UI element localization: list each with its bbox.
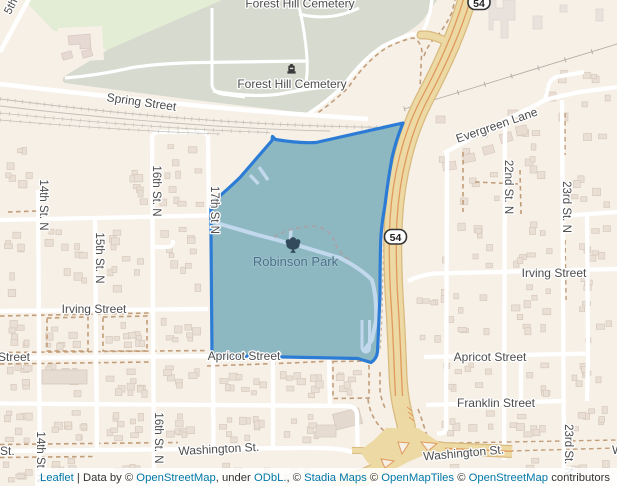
svg-text:Irving Street: Irving Street <box>522 266 587 280</box>
svg-text:16th St. N: 16th St. N <box>152 412 164 463</box>
svg-text:Irving Street: Irving Street <box>62 302 127 316</box>
svg-text:Apricot Street: Apricot Street <box>208 349 281 363</box>
svg-text:23rd St. N: 23rd St. N <box>560 181 572 233</box>
svg-text:22nd St. N: 22nd St. N <box>502 160 514 214</box>
svg-text:16th St. N: 16th St. N <box>150 165 162 216</box>
svg-text:Forest Hill Cemetery: Forest Hill Cemetery <box>237 77 346 91</box>
svg-text:Apricot Street: Apricot Street <box>454 350 527 364</box>
svg-text:54: 54 <box>390 232 402 244</box>
svg-text:17th St N: 17th St N <box>208 186 220 234</box>
svg-text:14th St. N: 14th St. N <box>37 179 49 230</box>
svg-text:Street: Street <box>0 350 31 364</box>
svg-text:Was: Was <box>612 443 617 457</box>
svg-text:Franklin Street: Franklin Street <box>457 396 536 410</box>
svg-text:54: 54 <box>473 0 485 10</box>
svg-text:Robinson Park: Robinson Park <box>253 254 339 269</box>
svg-text:15th St. N: 15th St. N <box>93 232 105 283</box>
svg-text:St.: St. <box>0 444 15 458</box>
svg-text:Forest Hill Cemetery: Forest Hill Cemetery <box>245 0 354 11</box>
svg-text:Leaflet | Data by © OpenStreet: Leaflet | Data by © OpenStreetMap, under… <box>40 472 611 484</box>
